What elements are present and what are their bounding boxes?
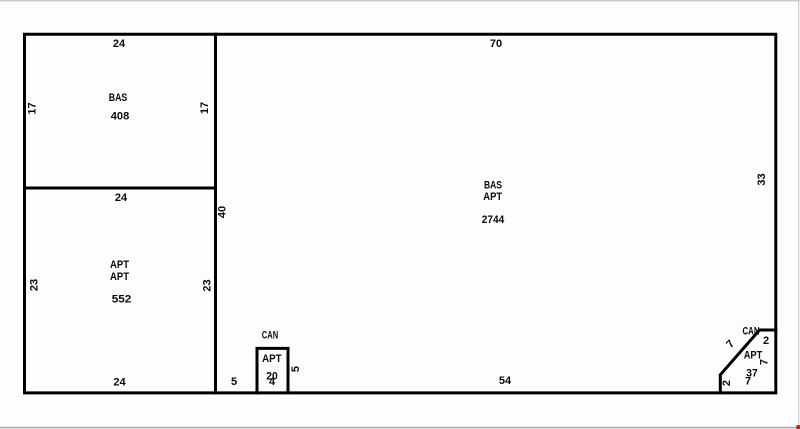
svg-text:24: 24: [113, 38, 126, 50]
svg-text:CAN: CAN: [262, 329, 278, 341]
svg-text:408: 408: [111, 110, 130, 122]
svg-text:7: 7: [759, 359, 771, 365]
svg-text:4: 4: [269, 376, 276, 388]
svg-text:23: 23: [29, 279, 41, 291]
svg-text:7: 7: [745, 375, 751, 387]
svg-text:2: 2: [721, 380, 733, 386]
svg-text:17: 17: [199, 102, 211, 114]
svg-text:APT: APT: [483, 191, 502, 203]
svg-text:23: 23: [202, 279, 214, 291]
svg-text:17: 17: [27, 102, 39, 114]
svg-text:70: 70: [490, 38, 502, 50]
svg-text:2: 2: [763, 335, 769, 347]
svg-text:54: 54: [499, 375, 512, 387]
svg-text:5: 5: [231, 376, 237, 388]
svg-text:BAS: BAS: [484, 180, 502, 192]
svg-text:5: 5: [290, 366, 302, 372]
svg-text:24: 24: [115, 192, 128, 204]
svg-text:33: 33: [756, 173, 768, 185]
svg-text:BAS: BAS: [109, 92, 128, 104]
svg-text:24: 24: [113, 377, 126, 389]
svg-text:APT: APT: [262, 353, 282, 365]
svg-text:CAN: CAN: [743, 326, 760, 338]
svg-text:APT: APT: [110, 259, 129, 271]
svg-text:40: 40: [217, 206, 229, 218]
svg-text:552: 552: [112, 293, 132, 305]
svg-text:2744: 2744: [482, 214, 505, 226]
svg-text:APT: APT: [110, 271, 129, 283]
